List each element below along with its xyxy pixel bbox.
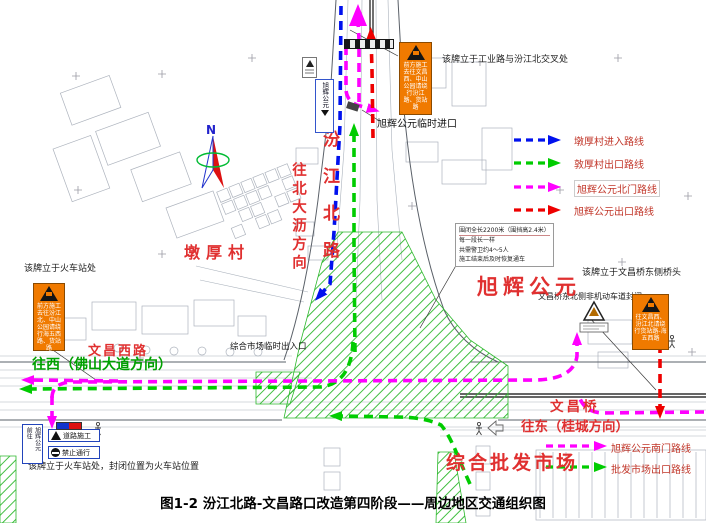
xuhui-guide-box: 旭辉公元 (315, 79, 334, 133)
callout-line-2: 每一段长一样 (459, 236, 550, 245)
figure-title: 图1-2 汾江北路-文昌路口改造第四阶段——周边地区交通组织图 (0, 492, 706, 512)
detour-sign-col2: 旭辉公元 (33, 427, 39, 461)
crossing-sign-icon (302, 57, 317, 78)
construction-sign-left-text: 前方施工去往汾江北、中山公园请绕行海五西路、货站路 (35, 303, 63, 353)
legend-dunhou-exit-label: 敦厚村出口路线 (574, 156, 644, 171)
magenta-up-arrowhead (349, 4, 367, 26)
route-xuhui-north-gate-out (358, 20, 359, 102)
callout-line-4: 施工结束后及时恢复通车 (459, 255, 550, 264)
no-passing-sign: 禁止通行 (48, 446, 100, 459)
detour-direction-sign: 前往 旭辉公元 (22, 424, 43, 464)
entrance-gate-block (346, 101, 360, 111)
to-west-label: 往西（佛山大道方向） (32, 354, 172, 374)
road-construction-sign-text: 道路施工 (63, 431, 91, 441)
road-closure-barrier (344, 39, 394, 49)
no-passing-sign-text: 禁止通行 (62, 448, 90, 458)
route-xuhui-exit-north (371, 36, 373, 138)
to-north-dali-label: 往北大沥方向 (288, 162, 309, 273)
bike-lane-closed-sign-icon (580, 302, 608, 332)
caption-sign-left-location: 该牌立于火车站处 (24, 261, 96, 274)
caption-sign-station-closure: 该牌立于火车站处，封闭位置为火车站位置 (28, 459, 199, 472)
legend-dunhou-entry-label: 墩厚村进入路线 (574, 133, 644, 148)
wenchang-bridge-label: 文昌桥 (550, 395, 600, 415)
fenjiang-north-road-label: 汾江北路 (317, 130, 342, 278)
wholesale-market-label: 综合批发市场 (446, 448, 578, 475)
map-linework: N (0, 0, 706, 523)
xuhui-guide-box-text: 旭辉公元 (321, 82, 328, 108)
construction-sign-top-text: 前方施工去往文昌西、中山公园请绕行汾江路、货站路 (401, 62, 430, 112)
warning-triangle-icon (51, 431, 61, 440)
no-entry-icon (51, 448, 60, 457)
down-arrow-icon (321, 110, 329, 116)
xuhui-gongyuan-label: 旭辉公元 (477, 271, 581, 301)
construction-sign-right: 往文昌西、汾江北请绕行货站路-海五西路 (632, 294, 669, 350)
detour-sign-col1: 前往 (25, 427, 31, 461)
route-dunhou-exit-north (354, 132, 355, 352)
worker-warning-icon (40, 286, 58, 301)
construction-sign-left: 前方施工去往汾江北、中山公园请绕行海五西路、货站路 (33, 283, 65, 351)
to-east-label: 往东（桂城方向） (521, 415, 629, 435)
north-compass-icon: N (197, 123, 229, 188)
caption-sign-top-location: 该牌立于工业路与汾江北交叉处 (442, 52, 568, 65)
worker-warning-icon (642, 297, 660, 312)
legend-xuhui-south-gate-label: 旭辉公元南门路线 (611, 440, 691, 455)
compass-n-label: N (206, 123, 216, 137)
market-temp-entrance-label: 综合市场临时出入口 (230, 340, 307, 352)
construction-sign-right-text: 往文昌西、汾江北请绕行货站路-海五西路 (634, 314, 667, 342)
caption-sign-right-location: 该牌立于文昌桥东侧桥头 (582, 265, 681, 278)
closure-color-bar (56, 422, 82, 430)
construction-hatch-zone (0, 232, 508, 523)
callout-line-1: 围闭全长2200米（围挡高2.4米） (459, 226, 550, 236)
callout-line-3: 共需警卫约4～5人 (459, 246, 550, 255)
worker-warning-icon (407, 45, 425, 60)
dunhou-village-label: 墩厚村 (184, 239, 250, 263)
legend-xuhui-north-gate-label: 旭辉公元北门路线 (574, 180, 660, 197)
turn-arrow-icon (488, 421, 503, 435)
road-construction-sign: 道路施工 (48, 429, 100, 442)
traffic-organization-map: N 墩厚村进入路线 敦厚村出口路线 旭辉公元北门路线 旭辉公元出口路线 旭辉公元… (0, 0, 706, 523)
construction-sign-top: 前方施工去往文昌西、中山公园请绕行汾江路、货站路 (399, 42, 432, 115)
closure-note-callout: 围闭全长2200米（围挡高2.4米） 每一段长一样 共需警卫约4～5人 施工结束… (455, 223, 554, 267)
legend-xuhui-exit-label: 旭辉公元出口路线 (574, 203, 654, 218)
xuhui-temp-entrance-label: 旭辉公元临时进口 (377, 115, 457, 130)
legend-market-exit-label: 批发市场出口路线 (611, 461, 691, 476)
